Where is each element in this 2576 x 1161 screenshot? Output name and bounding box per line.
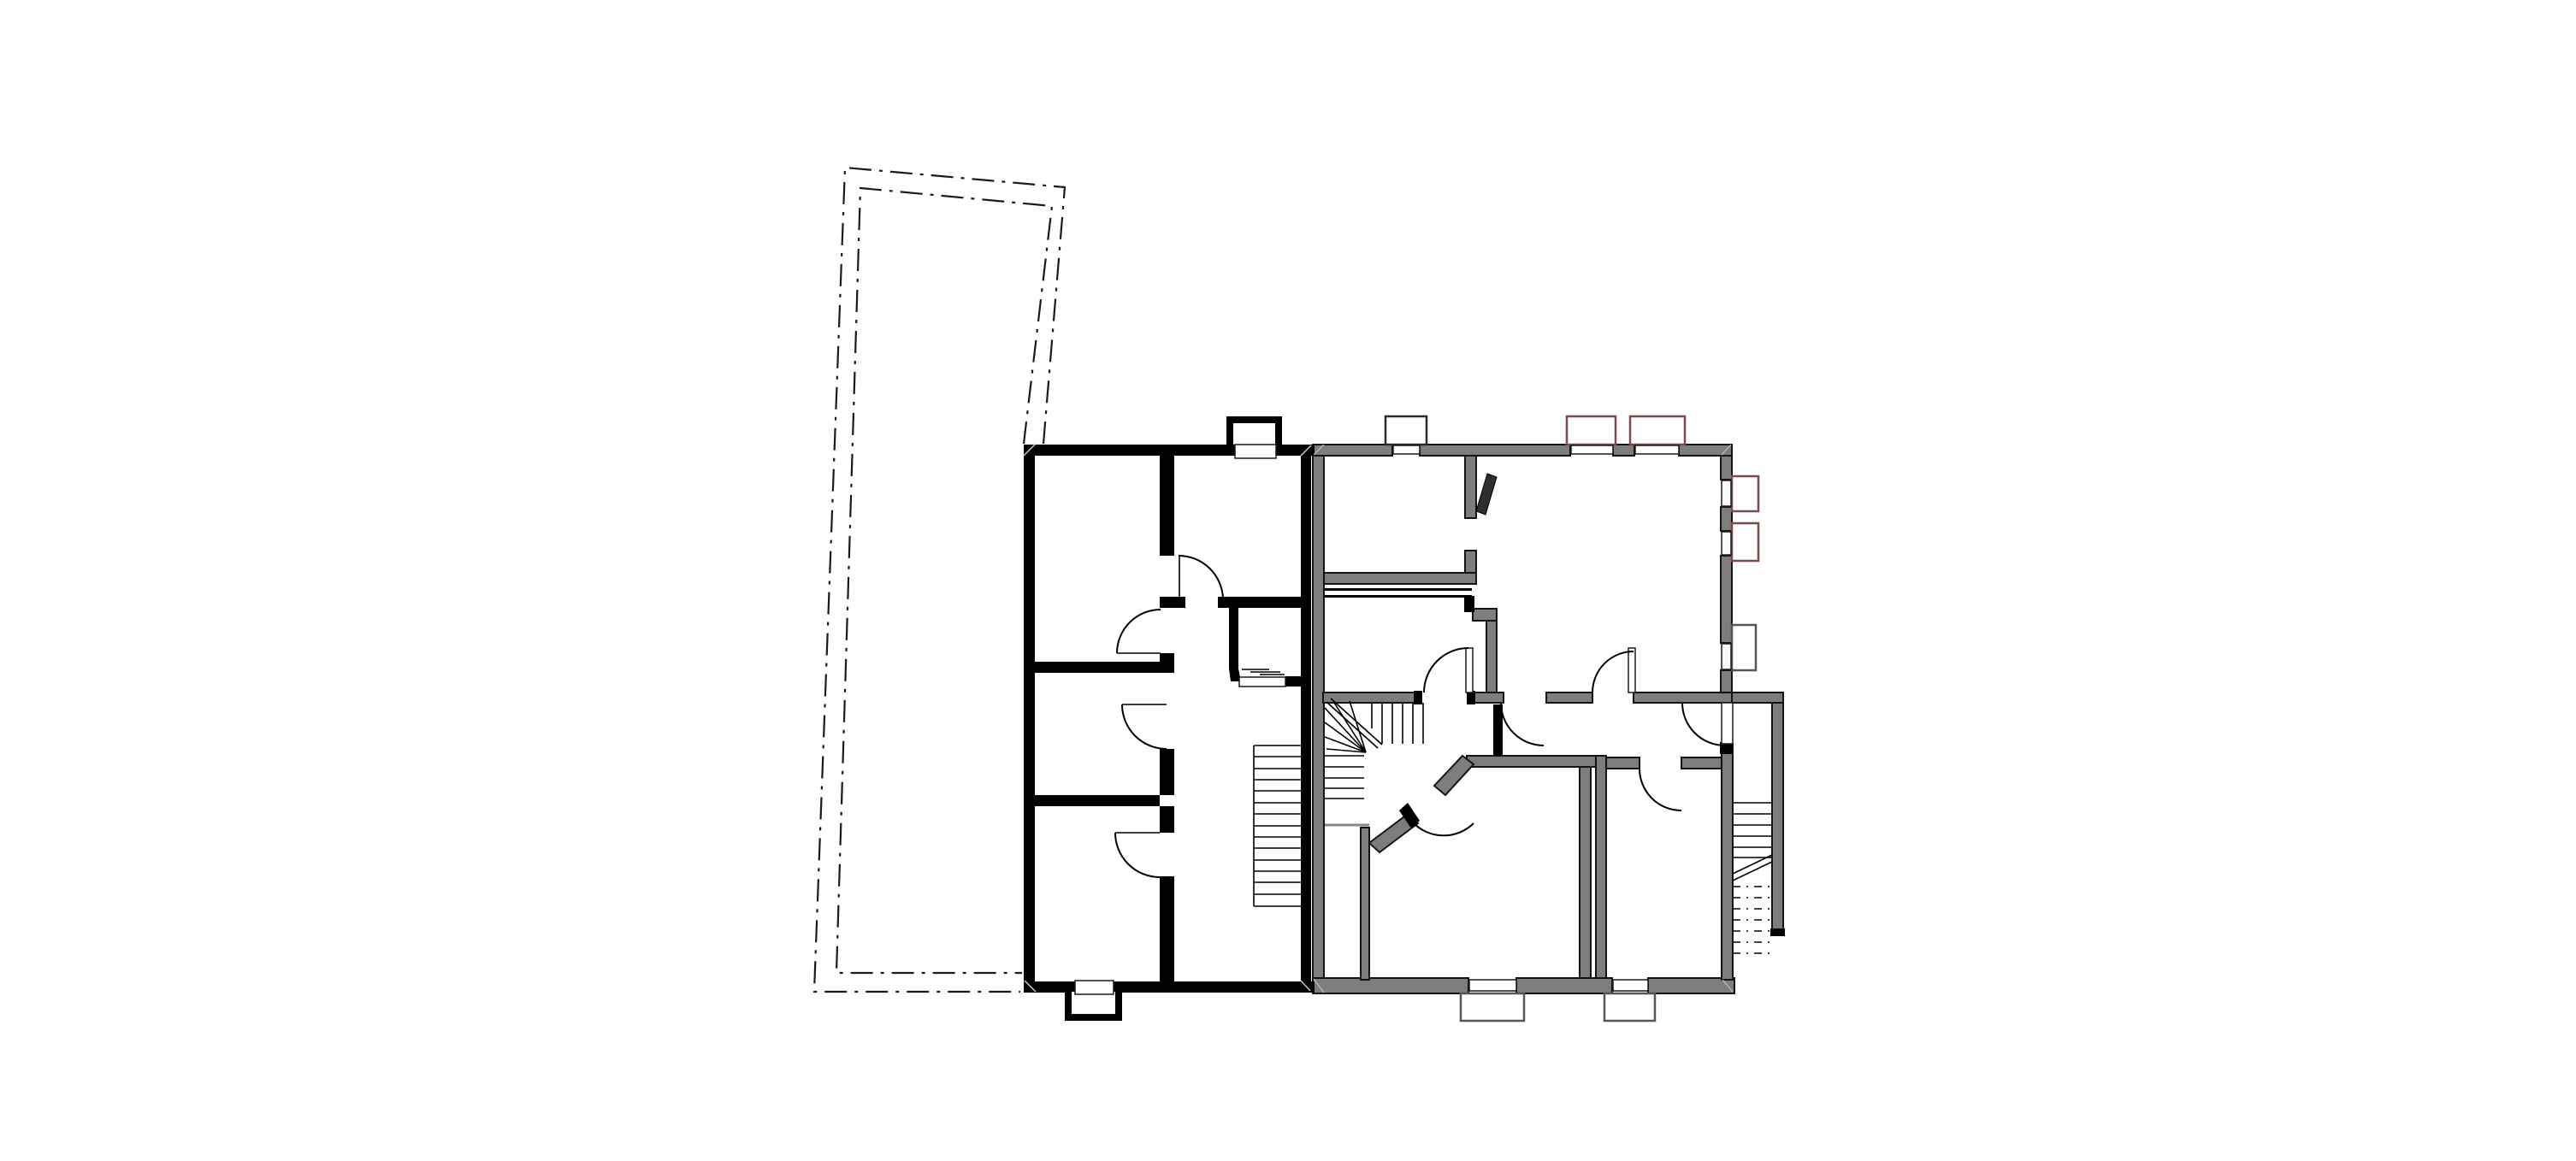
floor-plan-svg [0, 0, 2576, 1161]
dashed-stair-treads [1733, 887, 1772, 953]
ajar-door-leaf [1476, 474, 1497, 515]
door-swing-arcs [1115, 556, 1724, 877]
stair-treads-and-detail-lines [1024, 444, 1772, 993]
gray-unit-walls [1313, 445, 1783, 993]
floor-plan-canvas [0, 0, 2576, 1161]
black-unit-walls [1024, 445, 1785, 993]
window-boxes [1385, 416, 1758, 1021]
